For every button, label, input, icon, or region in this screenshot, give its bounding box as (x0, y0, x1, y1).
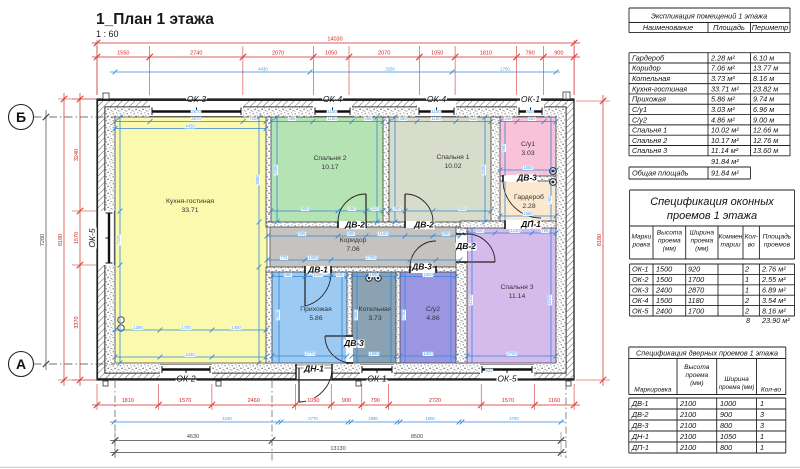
svg-text:ДП-1: ДП-1 (520, 219, 541, 229)
svg-text:(мм): (мм) (695, 246, 708, 253)
svg-text:7.06 м²: 7.06 м² (711, 64, 735, 73)
svg-text:12.76 м: 12.76 м (753, 136, 778, 145)
svg-text:2800: 2800 (275, 310, 280, 320)
svg-text:С/у2: С/у2 (632, 115, 647, 124)
svg-text:3.03 м²: 3.03 м² (711, 105, 735, 114)
svg-text:4430: 4430 (222, 416, 232, 421)
svg-text:Спецификация дверных проемов 1: Спецификация дверных проемов 1 этажа (636, 349, 778, 358)
svg-text:ДВ-3: ДВ-3 (343, 338, 364, 348)
svg-text:1880: 1880 (368, 416, 378, 421)
svg-text:895: 895 (284, 272, 292, 277)
svg-text:1050: 1050 (307, 398, 319, 404)
svg-text:2800: 2800 (353, 310, 358, 320)
svg-text:Наименование: Наименование (643, 23, 693, 32)
svg-text:23.90 м²: 23.90 м² (761, 316, 790, 325)
svg-text:4630: 4630 (187, 434, 199, 440)
svg-text:1660: 1660 (523, 165, 533, 170)
svg-text:9.74 м: 9.74 м (753, 95, 774, 104)
svg-text:Ширина: Ширина (690, 230, 715, 237)
svg-text:615: 615 (469, 116, 477, 121)
svg-text:ДВ-3: ДВ-3 (631, 421, 649, 430)
svg-text:2400: 2400 (655, 286, 672, 295)
svg-text:3.54 м²: 3.54 м² (762, 296, 786, 305)
svg-text:1500: 1500 (656, 265, 672, 274)
svg-text:23.82 м: 23.82 м (752, 84, 778, 93)
svg-text:Прихожая: Прихожая (632, 95, 666, 104)
svg-text:Спальня 2: Спальня 2 (632, 136, 667, 145)
svg-text:А: А (16, 356, 26, 372)
svg-text:проема: проема (658, 238, 681, 245)
svg-text:2100: 2100 (679, 399, 696, 408)
svg-text:1: 1 (760, 443, 764, 452)
svg-text:400: 400 (393, 206, 401, 211)
svg-text:6.96 м: 6.96 м (753, 105, 774, 114)
svg-text:Гардероб: Гардероб (514, 193, 544, 201)
svg-text:950: 950 (501, 144, 506, 152)
svg-text:900: 900 (301, 206, 309, 211)
svg-text:1810: 1810 (122, 398, 134, 404)
svg-text:2700: 2700 (507, 351, 517, 356)
svg-text:9.00 м: 9.00 м (753, 115, 774, 124)
svg-text:920: 920 (688, 265, 700, 274)
svg-text:1180: 1180 (327, 116, 337, 121)
svg-text:1100: 1100 (378, 231, 388, 236)
svg-text:1050: 1050 (720, 432, 736, 441)
svg-text:3: 3 (760, 410, 764, 419)
svg-text:33.71 м²: 33.71 м² (711, 84, 739, 93)
svg-text:ОК-4: ОК-4 (323, 94, 342, 104)
svg-text:2100: 2100 (679, 432, 696, 441)
svg-text:1570: 1570 (179, 398, 191, 404)
svg-text:13.60 м: 13.60 м (753, 146, 778, 155)
svg-text:2770: 2770 (305, 351, 315, 356)
svg-text:С/у1: С/у1 (521, 141, 535, 148)
svg-text:Площадь: Площадь (713, 23, 745, 32)
svg-text:Спальня 1: Спальня 1 (437, 154, 470, 161)
svg-text:775: 775 (280, 255, 288, 260)
svg-text:815: 815 (458, 206, 466, 211)
svg-text:3: 3 (760, 421, 764, 430)
svg-text:ОК-4: ОК-4 (632, 296, 648, 305)
svg-text:Спальня 3: Спальня 3 (501, 284, 534, 291)
svg-text:ДВ-1: ДВ-1 (631, 399, 649, 408)
svg-text:1660: 1660 (523, 211, 533, 216)
svg-text:ДВ-2: ДВ-2 (413, 220, 434, 230)
svg-text:2: 2 (744, 296, 749, 305)
svg-text:10.17 м²: 10.17 м² (711, 136, 739, 145)
svg-text:ОК-4: ОК-4 (427, 94, 446, 104)
svg-text:91.84 м²: 91.84 м² (711, 157, 739, 166)
svg-text:800: 800 (528, 116, 536, 121)
svg-text:10.17: 10.17 (321, 164, 338, 171)
svg-text:Котельная: Котельная (359, 306, 392, 313)
svg-text:7.06: 7.06 (346, 246, 359, 253)
svg-text:ОК-3: ОК-3 (632, 286, 648, 295)
svg-text:800: 800 (442, 231, 450, 236)
svg-text:1180: 1180 (327, 109, 337, 114)
svg-text:3370: 3370 (547, 295, 552, 305)
svg-text:2870: 2870 (687, 286, 704, 295)
svg-text:12.66 м: 12.66 м (753, 126, 778, 135)
svg-text:1: 1 (760, 399, 764, 408)
svg-text:790: 790 (371, 398, 380, 404)
svg-text:ДН-1: ДН-1 (631, 432, 649, 441)
svg-text:14030: 14030 (327, 37, 342, 43)
svg-text:1800: 1800 (423, 272, 433, 277)
svg-text:1180: 1180 (688, 296, 704, 305)
svg-text:ОК-5: ОК-5 (87, 228, 97, 247)
svg-text:1000: 1000 (720, 399, 736, 408)
svg-text:ДН-1: ДН-1 (303, 364, 324, 374)
svg-text:1: 1 (745, 286, 749, 295)
svg-text:ОК-1: ОК-1 (521, 94, 540, 104)
svg-text:Маркировка: Маркировка (634, 387, 672, 394)
svg-text:проемов: проемов (764, 242, 791, 249)
svg-text:450: 450 (348, 206, 356, 211)
svg-text:4430: 4430 (185, 352, 195, 357)
svg-text:проемов 1 этажа: проемов 1 этажа (667, 210, 757, 222)
svg-text:ДВ-2: ДВ-2 (344, 220, 365, 230)
svg-text:920: 920 (526, 109, 534, 114)
svg-text:13130: 13130 (330, 446, 345, 452)
svg-text:2700: 2700 (509, 416, 519, 421)
svg-text:3.73 м²: 3.73 м² (711, 74, 735, 83)
svg-text:13.77 м: 13.77 м (753, 64, 778, 73)
svg-text:900: 900 (342, 398, 351, 404)
svg-text:2700: 2700 (401, 310, 406, 320)
svg-text:Б: Б (16, 109, 26, 125)
svg-text:ДВ-2: ДВ-2 (631, 410, 649, 419)
svg-text:455: 455 (364, 116, 372, 121)
svg-text:Спецификация оконных: Спецификация оконных (650, 196, 774, 208)
svg-text:Кухня-гостиная: Кухня-гостиная (166, 198, 214, 205)
svg-text:Периметр: Периметр (752, 23, 789, 32)
svg-text:Кол-: Кол- (745, 234, 759, 241)
svg-text:ОК-5: ОК-5 (632, 306, 649, 315)
svg-text:ОК-3: ОК-3 (187, 94, 206, 104)
svg-text:6.10 м: 6.10 м (753, 53, 774, 62)
svg-text:8.16 м: 8.16 м (753, 74, 774, 83)
svg-text:2740: 2740 (190, 51, 202, 57)
svg-text:1500: 1500 (656, 275, 672, 284)
svg-text:Ширина: Ширина (724, 376, 749, 383)
svg-text:4430: 4430 (185, 124, 195, 129)
svg-text:2100: 2100 (679, 410, 696, 419)
svg-text:2100: 2100 (679, 421, 696, 430)
svg-text:ДВ-2: ДВ-2 (455, 241, 476, 251)
svg-text:11.14: 11.14 (509, 293, 526, 300)
svg-text:2460: 2460 (248, 398, 260, 404)
svg-text:2: 2 (744, 265, 749, 274)
svg-text:1800: 1800 (425, 416, 435, 421)
svg-text:ОК-2: ОК-2 (632, 275, 648, 284)
svg-text:800: 800 (347, 231, 355, 236)
svg-text:3080: 3080 (255, 175, 260, 185)
svg-text:Марки: Марки (631, 234, 651, 241)
svg-text:4.86 м²: 4.86 м² (711, 115, 735, 124)
svg-text:10.02 м²: 10.02 м² (711, 126, 739, 135)
svg-text:Спальня 3: Спальня 3 (632, 146, 667, 155)
svg-text:1700: 1700 (688, 275, 704, 284)
svg-text:1810: 1810 (480, 51, 492, 57)
svg-text:900: 900 (720, 410, 732, 419)
svg-text:Коридор: Коридор (340, 237, 367, 244)
svg-text:3200: 3200 (481, 165, 486, 175)
svg-text:310: 310 (371, 206, 379, 211)
svg-text:1160: 1160 (548, 398, 560, 404)
svg-text:7225: 7225 (116, 235, 121, 245)
svg-text:2870: 2870 (191, 116, 201, 121)
svg-text:1: 1 (760, 432, 764, 441)
svg-text:835: 835 (298, 231, 306, 236)
svg-text:4.86: 4.86 (426, 315, 439, 322)
svg-text:Котельная: Котельная (632, 74, 670, 83)
svg-text:7280: 7280 (40, 234, 46, 246)
svg-text:920: 920 (485, 368, 493, 373)
svg-text:6.89 м²: 6.89 м² (762, 286, 786, 295)
svg-text:проема: проема (685, 372, 708, 379)
svg-text:8180: 8180 (597, 234, 603, 246)
svg-text:725: 725 (249, 116, 257, 121)
svg-text:(мм): (мм) (663, 246, 676, 253)
svg-text:2400: 2400 (655, 306, 672, 315)
svg-text:2100: 2100 (679, 443, 696, 452)
svg-text:540: 540 (336, 272, 344, 277)
svg-text:1500: 1500 (656, 296, 672, 305)
svg-text:ДП-1: ДП-1 (631, 443, 649, 452)
svg-text:ОК-1: ОК-1 (632, 265, 648, 274)
svg-text:2.28 м²: 2.28 м² (710, 53, 735, 62)
svg-text:1800: 1800 (423, 351, 433, 356)
svg-text:8.16 м²: 8.16 м² (762, 306, 786, 315)
svg-text:1570: 1570 (74, 232, 80, 244)
svg-text:2770: 2770 (308, 416, 318, 421)
svg-text:795: 795 (541, 228, 549, 233)
svg-text:800: 800 (476, 228, 484, 233)
svg-text:С/у2: С/у2 (426, 306, 440, 313)
svg-text:800: 800 (720, 443, 732, 452)
svg-text:3.73: 3.73 (368, 315, 381, 322)
svg-text:1880: 1880 (369, 351, 379, 356)
svg-text:1400: 1400 (231, 325, 241, 330)
svg-text:900: 900 (554, 51, 563, 57)
svg-text:2.28: 2.28 (522, 203, 535, 210)
svg-text:800: 800 (720, 421, 732, 430)
svg-text:91.84 м²: 91.84 м² (711, 169, 739, 178)
svg-text:2870: 2870 (191, 109, 201, 114)
svg-text:+50: +50 (547, 196, 552, 204)
svg-text:33.71: 33.71 (181, 207, 198, 214)
svg-text:2: 2 (744, 306, 749, 315)
svg-text:5.86: 5.86 (309, 315, 322, 322)
svg-text:1700: 1700 (688, 306, 704, 315)
svg-text:Высота: Высота (657, 230, 683, 237)
svg-text:(мм): (мм) (690, 380, 703, 387)
svg-text:1050: 1050 (325, 51, 337, 57)
svg-text:Общая площадь: Общая площадь (632, 169, 689, 178)
svg-text:Коридор: Коридор (632, 64, 661, 73)
svg-text:1240: 1240 (510, 228, 520, 233)
svg-text:Спальня 2: Спальня 2 (314, 155, 347, 162)
svg-text:2070: 2070 (272, 51, 284, 57)
svg-text:ДВ-3: ДВ-3 (516, 173, 537, 183)
svg-text:1_План 1 этажа: 1_План 1 этажа (96, 11, 214, 28)
svg-text:Высота: Высота (684, 364, 710, 371)
svg-text:1700: 1700 (181, 325, 191, 330)
svg-text:3250: 3250 (385, 67, 395, 72)
svg-text:проема (мм): проема (мм) (719, 384, 755, 391)
svg-text:Гардероб: Гардероб (632, 53, 665, 62)
svg-text:Экспликация помещений 1 этажа: Экспликация помещений 1 этажа (651, 12, 767, 21)
svg-text:Спальня 1: Спальня 1 (632, 126, 667, 135)
svg-text:2.55 м²: 2.55 м² (761, 275, 786, 284)
svg-text:ДВ-3: ДВ-3 (411, 262, 432, 272)
svg-text:2720: 2720 (429, 398, 441, 404)
svg-text:проема: проема (690, 238, 713, 245)
svg-text:Кухня-гостиная: Кухня-гостиная (632, 84, 687, 93)
svg-text:1000: 1000 (308, 255, 318, 260)
svg-text:1550: 1550 (117, 51, 129, 57)
svg-text:4120: 4120 (468, 295, 473, 305)
svg-text:Кол-во: Кол-во (761, 387, 782, 394)
svg-text:2.76 м²: 2.76 м² (761, 265, 786, 274)
svg-text:10.02: 10.02 (444, 163, 461, 170)
svg-text:Прихожая: Прихожая (300, 306, 332, 313)
svg-text:во: во (748, 242, 755, 249)
svg-text:3240: 3240 (74, 149, 80, 161)
svg-text:1295: 1295 (133, 325, 143, 330)
svg-text:1570: 1570 (502, 398, 514, 404)
svg-text:1050: 1050 (431, 51, 443, 57)
svg-text:4430: 4430 (258, 67, 268, 72)
svg-text:1750: 1750 (500, 67, 510, 72)
svg-text:2700: 2700 (366, 255, 376, 260)
svg-text:ровка: ровка (632, 242, 651, 249)
svg-text:445: 445 (504, 116, 512, 121)
svg-text:С/у1: С/у1 (632, 105, 647, 114)
svg-text:3.03: 3.03 (521, 150, 534, 157)
svg-text:3370: 3370 (74, 316, 80, 328)
svg-text:790: 790 (525, 51, 534, 57)
svg-text:1180: 1180 (431, 109, 441, 114)
svg-text:тарии: тарии (720, 242, 740, 249)
svg-text:2070: 2070 (378, 51, 390, 57)
svg-text:1180: 1180 (431, 116, 441, 121)
svg-text:495: 495 (288, 116, 296, 121)
svg-text:Площадь: Площадь (763, 233, 792, 241)
svg-text:1 : 60: 1 : 60 (96, 29, 119, 39)
svg-text:8180: 8180 (58, 234, 64, 246)
svg-text:1000: 1000 (313, 272, 323, 277)
svg-text:3200: 3200 (273, 165, 278, 175)
svg-text:ОК-5: ОК-5 (497, 374, 516, 384)
svg-text:1880: 1880 (369, 272, 379, 277)
svg-text:5.86 м²: 5.86 м² (711, 95, 735, 104)
svg-text:8500: 8500 (411, 434, 423, 440)
svg-text:480: 480 (399, 116, 407, 121)
svg-text:Коммен: Коммен (719, 234, 743, 241)
svg-text:11.14 м²: 11.14 м² (711, 146, 739, 155)
svg-text:1: 1 (745, 275, 749, 284)
